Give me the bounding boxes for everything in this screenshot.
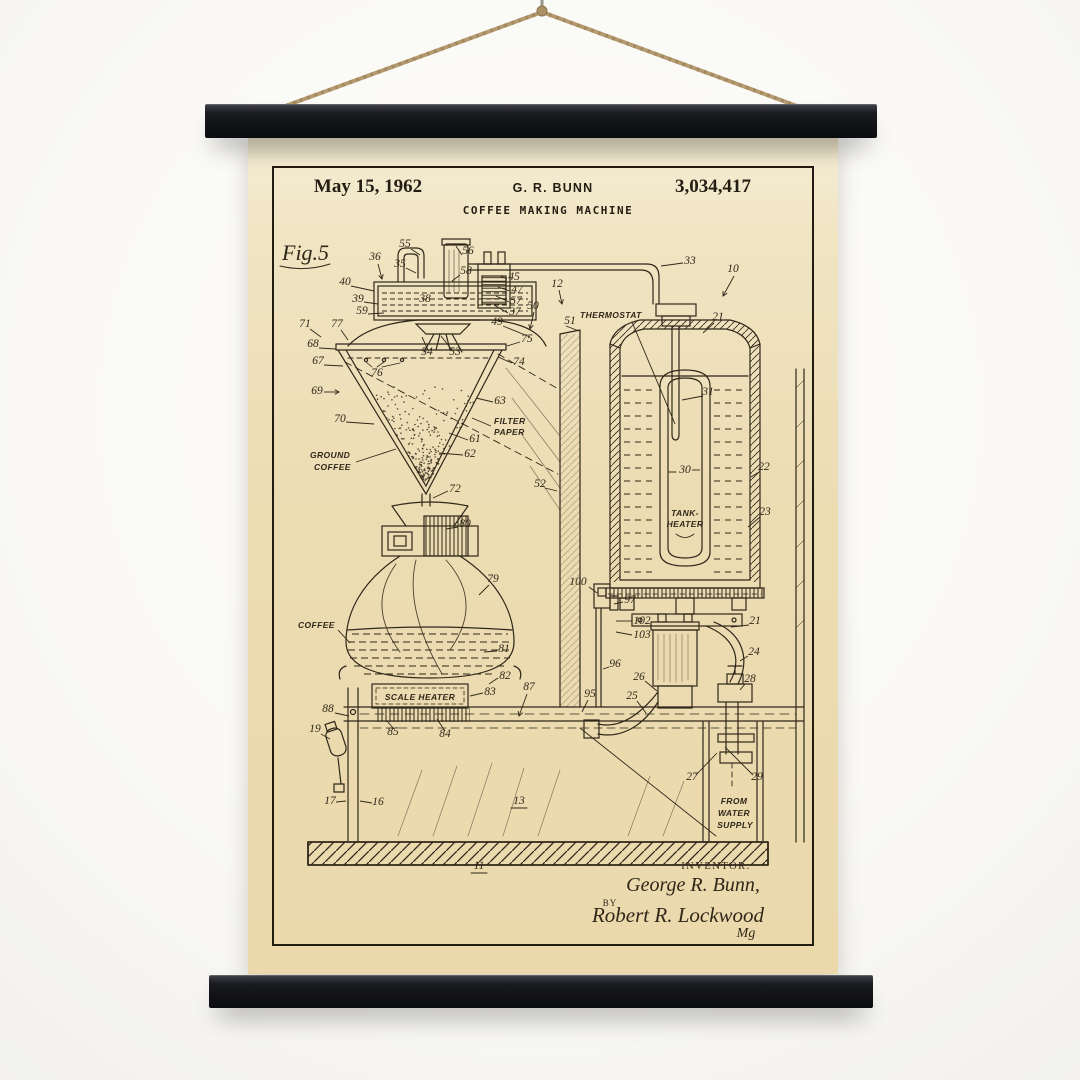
coffee-grounds-dot (423, 475, 425, 477)
part-number-49: 49 (491, 316, 503, 328)
coffee-grounds-dot (421, 441, 423, 443)
leader-line (368, 313, 384, 314)
coffee-grounds-dot (413, 430, 415, 432)
coffee-grounds-dot (411, 438, 413, 440)
part-number-33: 33 (683, 255, 696, 267)
leader-line (682, 396, 703, 400)
coffee-grounds-dot (461, 423, 463, 425)
leader-line (310, 329, 321, 337)
coffee-grounds-dot (438, 459, 440, 461)
part-number-80: 80 (459, 518, 471, 530)
coffee-grounds-dot (434, 456, 436, 458)
coffee-grounds-dot (428, 480, 430, 482)
coffee-grounds-dot (418, 471, 420, 473)
label-paper: PAPER (494, 427, 525, 437)
coffee-grounds-dot (409, 442, 411, 444)
leader-line (494, 305, 508, 313)
coffee-grounds-dot (417, 448, 419, 450)
coffee-grounds-dot (427, 473, 429, 475)
coffee-grounds-dot (403, 401, 405, 403)
label-scale-heater: SCALE HEATER (385, 692, 456, 702)
coffee-grounds-dot (377, 398, 379, 400)
coffee-grounds-dot (425, 479, 427, 481)
coffee-grounds-dot (438, 460, 440, 462)
coffee-grounds-dot (439, 442, 441, 444)
leader-line (356, 449, 396, 462)
coffee-grounds-dot (407, 422, 409, 424)
coffee-grounds-dot (431, 470, 433, 472)
coffee-grounds-dot (422, 393, 424, 395)
leader-line (661, 263, 683, 266)
part-number-27: 27 (686, 771, 699, 783)
coffee-grounds-dot (417, 426, 419, 428)
coffee-grounds-dot (421, 462, 423, 464)
leader-line (582, 700, 588, 712)
part-number-24: 24 (748, 646, 760, 658)
coffee-grounds-dot (384, 410, 386, 412)
coffee-grounds-dot (427, 421, 429, 423)
part-number-36: 36 (368, 251, 381, 263)
coffee-grounds-dot (383, 398, 385, 400)
part-number-62: 62 (464, 448, 476, 460)
coffee-grounds-dot (391, 420, 393, 422)
coffee-grounds-dot (429, 463, 431, 465)
part-number-39: 39 (351, 293, 364, 305)
coffee-grounds-dot (442, 388, 444, 390)
coffee-grounds-dot (412, 458, 414, 460)
leader-line (433, 491, 448, 498)
coffee-grounds-dot (423, 455, 425, 457)
part-number-51: 51 (564, 315, 576, 327)
coffee-grounds-dot (416, 469, 418, 471)
coffee-grounds-dot (466, 410, 468, 412)
coffee-grounds-dot (419, 450, 421, 452)
coffee-grounds-dot (464, 403, 466, 405)
coffee-grounds-dot (417, 472, 419, 474)
label-thermostat: THERMOSTAT (580, 310, 642, 320)
coffee-grounds-dot (415, 458, 417, 460)
coffee-grounds-dot (416, 396, 418, 398)
leader-line (616, 632, 632, 635)
label-filter: FILTER (494, 416, 526, 426)
part-number-85: 85 (387, 726, 399, 738)
coffee-grounds-dot (387, 391, 389, 393)
coffee-grounds-dot (435, 452, 437, 454)
coffee-grounds-dot (439, 454, 441, 456)
coffee-grounds-dot (422, 448, 424, 450)
label-from: FROM (721, 796, 748, 806)
part-number-77: 77 (331, 318, 344, 330)
leader-line (346, 422, 374, 424)
coffee-grounds-dot (443, 412, 445, 414)
wall-scene: May 15, 1962 G. R. BUNN 3,034,417 COFFEE… (0, 0, 1080, 1080)
coffee-grounds-dot (423, 470, 425, 472)
part-number-72: 72 (449, 483, 461, 495)
coffee-grounds-dot (443, 420, 445, 422)
coffee-grounds-dot (420, 464, 422, 466)
leader-line (319, 348, 336, 349)
coffee-grounds-dot (420, 423, 422, 425)
coffee-grounds-dot (428, 461, 430, 463)
coffee-grounds-dot (468, 395, 470, 397)
coffee-grounds-dot (443, 448, 445, 450)
coffee-grounds-dot (418, 458, 420, 460)
part-number-59: 59 (356, 305, 368, 317)
coffee-grounds-dot (459, 427, 461, 429)
coffee-grounds-dot (422, 459, 424, 461)
coffee-grounds-dot (429, 456, 431, 458)
part-number-30: 30 (678, 464, 691, 476)
leader-line (351, 286, 374, 291)
label-heater: HEATER (667, 519, 704, 529)
coffee-grounds-dot (399, 414, 401, 416)
coffee-grounds-dot (446, 413, 448, 415)
part-number-19: 19 (309, 723, 321, 735)
coffee-grounds-dot (422, 439, 424, 441)
coffee-grounds-dot (386, 417, 388, 419)
coffee-grounds-dot (427, 476, 429, 478)
leader-line (336, 801, 346, 802)
patent-poster: May 15, 1962 G. R. BUNN 3,034,417 COFFEE… (248, 136, 838, 974)
coffee-grounds-dot (391, 399, 393, 401)
machine-linework (280, 239, 804, 873)
coffee-grounds-dot (439, 435, 441, 437)
coffee-grounds-dot (422, 457, 424, 459)
coffee-grounds-dot (465, 406, 467, 408)
coffee-grounds-dot (408, 455, 410, 457)
coffee-grounds-dot (422, 418, 424, 420)
leader-line (603, 667, 609, 669)
coffee-grounds-dot (449, 445, 451, 447)
coffee-grounds-dot (408, 413, 410, 415)
part-number-13: 13 (513, 795, 525, 807)
part-number-10: 10 (727, 263, 739, 275)
part-number-63: 63 (494, 395, 506, 407)
coffee-grounds-dot (401, 424, 403, 426)
coffee-grounds-dot (412, 429, 414, 431)
part-number-52: 52 (534, 478, 546, 490)
coffee-grounds-dot (456, 427, 458, 429)
coffee-grounds-dot (412, 443, 414, 445)
leader-line (484, 651, 497, 652)
coffee-grounds-dot (430, 461, 432, 463)
coffee-grounds-dot (421, 469, 423, 471)
part-number-96: 96 (609, 658, 621, 670)
coffee-grounds-dot (394, 396, 396, 398)
coffee-grounds-dot (421, 475, 423, 477)
coffee-grounds-dot (394, 428, 396, 430)
coffee-grounds-dot (417, 419, 419, 421)
part-number-71: 71 (299, 318, 311, 330)
part-number-56: 56 (462, 245, 474, 257)
coffee-grounds-dot (430, 434, 432, 436)
coffee-grounds-dot (400, 432, 402, 434)
coffee-grounds-dot (427, 467, 429, 469)
coffee-grounds-dot (424, 480, 426, 482)
coffee-grounds-dot (399, 428, 401, 430)
coffee-grounds-dot (401, 396, 403, 398)
part-number-54: 54 (421, 346, 433, 358)
coffee-grounds-dot (461, 390, 463, 392)
leader-line (470, 693, 483, 696)
part-number-84: 84 (439, 728, 451, 740)
coffee-grounds-dot (419, 416, 421, 418)
coffee-grounds-dot (429, 452, 431, 454)
coffee-grounds-dot (434, 467, 436, 469)
part-number-68: 68 (307, 338, 319, 350)
leader-line (489, 678, 498, 684)
part-number-74: 74 (513, 356, 525, 368)
coffee-grounds-dot (420, 461, 422, 463)
part-number-87: 87 (523, 681, 536, 693)
patent-drawing: 3655355658403959384547573749501251331021… (248, 136, 838, 974)
coffee-grounds-dot (462, 419, 464, 421)
coffee-grounds-dot (393, 421, 395, 423)
part-number-25: 25 (626, 690, 638, 702)
coffee-grounds-dot (441, 439, 443, 441)
coffee-grounds-dot (407, 451, 409, 453)
label-coffee: COFFEE (298, 620, 335, 630)
coffee-grounds-dot (419, 469, 421, 471)
coffee-grounds-dot (423, 462, 425, 464)
leader-line (507, 342, 520, 346)
coffee-grounds-dot (438, 410, 440, 412)
part-number-17: 17 (324, 795, 337, 807)
coffee-grounds-dot (437, 435, 439, 437)
part-number-69: 69 (311, 385, 323, 397)
coffee-grounds-dot (413, 438, 415, 440)
leader-line (476, 398, 493, 402)
rope-knot (537, 6, 547, 16)
coffee-grounds-dot (428, 470, 430, 472)
part-number-81: 81 (498, 643, 510, 655)
part-number-79: 79 (487, 573, 499, 585)
part-number-55: 55 (399, 238, 411, 250)
poster-hanger-bottom-bar (209, 975, 873, 1008)
part-number-23: 23 (759, 506, 771, 518)
leader-line (472, 418, 491, 426)
coffee-grounds-dot (447, 411, 449, 413)
coffee-grounds-dot (380, 396, 382, 398)
coffee-grounds-dot (414, 434, 416, 436)
leader-line (479, 585, 489, 595)
coffee-grounds-dot (406, 429, 408, 431)
coffee-grounds-dot (425, 472, 427, 474)
coffee-grounds-dot (387, 405, 389, 407)
coffee-grounds-dot (427, 429, 429, 431)
coffee-grounds-dot (392, 416, 394, 418)
part-number-100: 100 (569, 576, 587, 588)
coffee-grounds-dot (431, 474, 433, 476)
part-number-88: 88 (322, 703, 334, 715)
coffee-grounds-dot (433, 431, 435, 433)
part-number-40: 40 (339, 276, 351, 288)
part-number-95: 95 (584, 688, 596, 700)
coffee-grounds-dot (422, 479, 424, 481)
part-number-16: 16 (372, 796, 384, 808)
coffee-grounds-dot (423, 444, 425, 446)
coffee-grounds-dot (431, 430, 433, 432)
coffee-grounds-dot (470, 402, 472, 404)
coffee-grounds-dot (434, 427, 436, 429)
coffee-grounds-dot (429, 398, 431, 400)
part-number-67: 67 (312, 355, 325, 367)
coffee-grounds-dot (422, 452, 424, 454)
coffee-grounds-dot (429, 467, 431, 469)
part-number-21: 21 (749, 615, 761, 627)
coffee-grounds-dot (431, 462, 433, 464)
coffee-grounds-dot (450, 418, 452, 420)
coffee-grounds-dot (427, 456, 429, 458)
coffee-grounds-dot (419, 467, 421, 469)
label-fig-5: Fig.5 (281, 240, 329, 265)
coffee-grounds-dot (437, 431, 439, 433)
coffee-grounds-dot (401, 438, 403, 440)
leader-line (725, 747, 753, 775)
coffee-grounds-dot (424, 390, 426, 392)
coffee-grounds-dot (409, 430, 411, 432)
coffee-grounds-dot (433, 473, 435, 475)
coffee-grounds-dot (395, 404, 397, 406)
coffee-grounds-dot (422, 471, 424, 473)
leader-line (449, 433, 468, 440)
part-number-75: 75 (521, 333, 533, 345)
coffee-grounds-dot (453, 399, 455, 401)
coffee-grounds-dot (429, 469, 431, 471)
coffee-grounds-dot (419, 433, 421, 435)
label-inventor: INVENTOR. (681, 861, 751, 872)
coffee-grounds-dot (415, 466, 417, 468)
part-number-83: 83 (484, 686, 496, 698)
part-number-102: 102 (633, 615, 651, 627)
coffee-grounds-dot (408, 444, 410, 446)
coffee-grounds-dot (397, 408, 399, 410)
part-number-22: 22 (758, 461, 770, 473)
leader-line (406, 268, 416, 273)
part-number-50: 50 (527, 300, 539, 312)
coffee-grounds-dot (467, 400, 469, 402)
part-number-45: 45 (508, 271, 520, 283)
coffee-grounds-dot (388, 394, 390, 396)
coffee-grounds-dot (400, 418, 402, 420)
coffee-grounds-dot (458, 422, 460, 424)
part-number-82: 82 (499, 670, 511, 682)
coffee-grounds-dot (409, 453, 411, 455)
part-number-21: 21 (712, 311, 724, 323)
leader-line (335, 713, 349, 716)
coffee-grounds-dot (436, 462, 438, 464)
coffee-grounds-dot (437, 450, 439, 452)
leader-line (696, 753, 717, 775)
coffee-grounds-dot (422, 477, 424, 479)
coffee-grounds-dot (472, 402, 474, 404)
coffee-grounds-dot (426, 459, 428, 461)
leader-line (360, 801, 372, 803)
leader-line (324, 365, 343, 366)
part-number-29: 29 (751, 771, 763, 783)
coffee-grounds-dot (428, 431, 430, 433)
coffee-grounds-dot (388, 419, 390, 421)
part-number-70: 70 (334, 413, 346, 425)
coffee-grounds-dot (429, 449, 431, 451)
label-tank: TANK- (671, 508, 699, 518)
rope-twist-texture (258, 12, 824, 116)
part-number-58: 58 (460, 265, 472, 277)
coffee-grounds-dot (405, 395, 407, 397)
coffee-grounds-dot (432, 470, 434, 472)
coffee-grounds-dot (434, 454, 436, 456)
leader-line (498, 357, 512, 363)
coffee-grounds-dot (421, 465, 423, 467)
part-number-76: 76 (371, 367, 383, 379)
label-robert-r-lockwood: Robert R. Lockwood (591, 903, 765, 927)
part-number-26: 26 (633, 671, 645, 683)
label-water: WATER (718, 808, 751, 818)
coffee-grounds-dot (422, 429, 424, 431)
coffee-grounds-dot (408, 427, 410, 429)
coffee-grounds-dot (430, 451, 432, 453)
coffee-grounds-dot (445, 439, 447, 441)
part-number-28: 28 (744, 673, 756, 685)
coffee-grounds-dot (414, 424, 416, 426)
coffee-grounds-dot (382, 411, 384, 413)
coffee-grounds-dot (428, 424, 430, 426)
part-number-53: 53 (449, 346, 461, 358)
coffee-grounds-dot (393, 386, 395, 388)
leader-line (338, 630, 350, 643)
coffee-grounds-dot (404, 411, 406, 413)
coffee-grounds-dot (395, 434, 397, 436)
coffee-grounds-dot (396, 395, 398, 397)
coffee-grounds-dot (412, 408, 414, 410)
coffee-grounds-dot (420, 472, 422, 474)
coffee-grounds-dot (426, 449, 428, 451)
poster-hanger-top-bar (205, 104, 877, 138)
coffee-grounds-dot (434, 429, 436, 431)
coffee-grounds-dot (376, 395, 378, 397)
coffee-grounds-dot (403, 438, 405, 440)
label-ground: GROUND (310, 450, 350, 460)
coffee-grounds-dot (418, 435, 420, 437)
coffee-grounds-dot (457, 408, 459, 410)
leader-line (519, 694, 527, 716)
coffee-grounds-dot (427, 463, 429, 465)
coffee-grounds-dot (441, 453, 443, 455)
label-coffee: COFFEE (314, 462, 351, 472)
coffee-grounds-dot (443, 453, 445, 455)
coffee-grounds-dot (436, 413, 438, 415)
part-number-11: 11 (474, 860, 485, 872)
label-supply: SUPPLY (717, 820, 754, 830)
coffee-grounds-dot (435, 450, 437, 452)
leader-line (364, 302, 378, 304)
part-number-97: 97 (624, 594, 637, 606)
coffee-grounds-dot (434, 386, 436, 388)
part-number-37: 37 (508, 306, 522, 318)
coffee-grounds-dot (416, 466, 418, 468)
coffee-grounds-dot (455, 413, 457, 415)
coffee-grounds-dot (438, 446, 440, 448)
coffee-grounds-dot (393, 417, 395, 419)
label-george-r-bunn: George R. Bunn, (626, 874, 760, 896)
part-number-31: 31 (701, 386, 714, 398)
coffee-grounds-dot (432, 446, 434, 448)
leader-line (589, 587, 597, 593)
coffee-grounds-dot (415, 453, 417, 455)
coffee-grounds-dot (434, 448, 436, 450)
leader-line (723, 276, 734, 296)
part-number-12: 12 (551, 278, 563, 290)
